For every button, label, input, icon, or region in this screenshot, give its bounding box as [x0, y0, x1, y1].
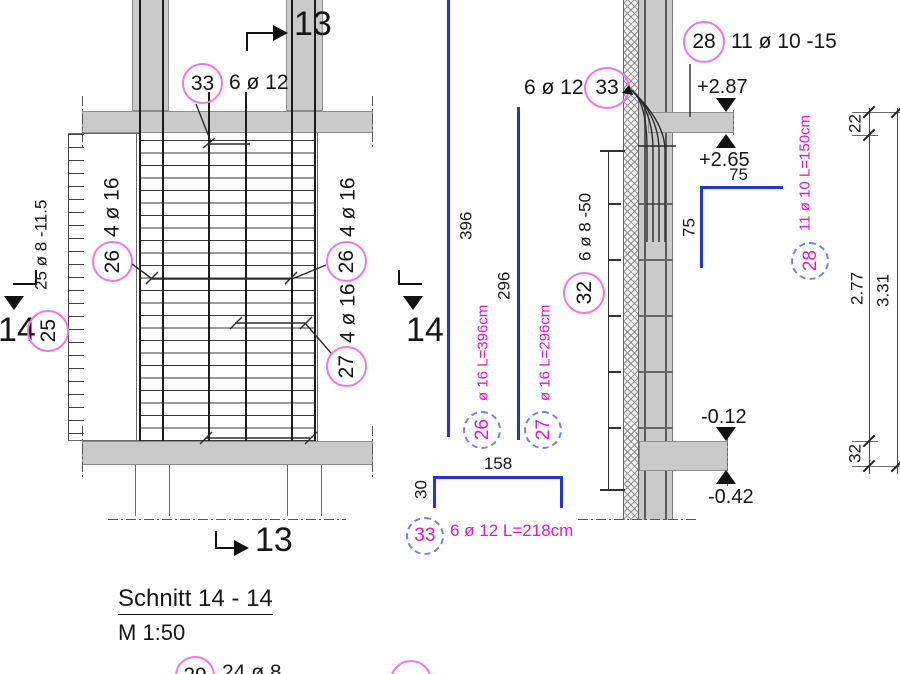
callout-number: 27: [534, 419, 553, 440]
level-012: -0.12: [701, 406, 747, 429]
bar-28-shape-leg: [700, 186, 703, 268]
bar-28-bubble: 28: [791, 242, 829, 280]
callout-number: 28: [801, 250, 820, 271]
wall-joint: [639, 315, 673, 317]
level-042: -0.42: [708, 486, 754, 509]
callout-number: 28: [692, 30, 715, 54]
bar-27-bubble: 27: [524, 411, 562, 449]
callout-32-label: 6 ø 8 -50: [575, 182, 595, 272]
drawing-scale: M 1:50: [118, 620, 185, 646]
level-arrow-down-icon: [716, 427, 736, 441]
callout-bubble-26-left: 26: [92, 241, 133, 282]
level-arrow-up-icon: [716, 134, 736, 148]
grid-border-right: [317, 133, 318, 441]
callout-bubble-partial-2: [390, 660, 432, 674]
callout-bubble-25: 25: [27, 310, 69, 352]
grid-border-left: [136, 133, 137, 441]
section-number: 13: [255, 521, 293, 560]
callout-number: 26: [336, 250, 357, 273]
grid-bar-vertical: [208, 92, 210, 441]
bar-26-length-label: ø 16 L=396cm: [473, 296, 493, 410]
callout-28-label: 11 ø 10 -15: [731, 30, 837, 54]
dim-277: 2.77: [847, 262, 867, 314]
staple-bubble: 33: [406, 517, 444, 555]
section-arrow-icon: [403, 296, 423, 310]
column-bar: [314, 0, 316, 441]
dim-32: 32: [845, 440, 865, 468]
grid-bar-vertical: [245, 92, 247, 441]
column-bar: [139, 0, 141, 441]
section-arrow-icon: [234, 540, 249, 556]
staple-bar-top: [433, 476, 563, 479]
wall-joint: [639, 203, 673, 205]
callout-bubble-26-right: 26: [326, 241, 367, 282]
bracket-32-tick: [608, 203, 621, 205]
upper-slab: [648, 112, 734, 133]
bracket-32-tick: [600, 489, 625, 491]
callout-27-label: 4 ø 16: [337, 280, 359, 346]
callout-bubble-27: 27: [326, 346, 367, 387]
bracket-32-line: [608, 150, 609, 490]
staple-length-label: 6 ø 12 L=218cm: [450, 521, 573, 541]
bracket-32-tick: [600, 150, 625, 152]
dim-line-inner: [869, 108, 870, 474]
callout-25-label: 25 ø 8 -11.5: [30, 178, 52, 312]
callout-bubble-33-section: 33: [584, 67, 630, 109]
bracket-32-tick: [608, 315, 621, 317]
wall-joint: [639, 371, 673, 373]
bar-28-dim-side: 75: [679, 212, 699, 244]
section-axis-line: [578, 519, 698, 520]
callout-26r-label: 4 ø 16: [337, 174, 359, 240]
staple-bar-leg-left: [433, 476, 436, 508]
callout-number: 29: [183, 664, 206, 674]
staple-dim-leg: 30: [412, 476, 430, 504]
callout-number: 32: [574, 281, 595, 304]
callout-number: 33: [414, 525, 435, 547]
wall-line: [287, 465, 288, 516]
column-bar: [291, 0, 293, 441]
dim-line-outer: [897, 108, 898, 474]
column-bar: [162, 0, 164, 441]
callout-number: 26: [102, 250, 123, 273]
dim-296: 296: [494, 260, 514, 312]
callout-bubble-29-partial: 29: [175, 656, 215, 674]
level-arrow-down-icon: [716, 98, 736, 112]
level-arrow-up-icon: [716, 470, 736, 484]
break-line: [372, 426, 373, 478]
bracket-32-tick: [608, 371, 621, 373]
callout-number: 26: [473, 419, 492, 440]
callout-number: 33: [595, 76, 618, 100]
bar-28-shape-top: [700, 186, 783, 189]
dim-331: 3.31: [873, 264, 893, 316]
center-axis-line: [108, 519, 346, 520]
bar-28-length-label: 11 ø 10 L=150cm: [795, 110, 815, 236]
wall-line: [169, 465, 170, 516]
structural-drawing: 13 13 14 14 33 6 ø 12 25 ø 8 -11.5 25 4 …: [0, 0, 900, 674]
wall-line: [321, 465, 322, 516]
wall-joint: [639, 427, 673, 429]
drawing-title: Schnitt 14 - 14: [118, 585, 273, 613]
bar-26-bubble: 26: [463, 411, 501, 449]
section-number: 13: [294, 5, 332, 44]
plan-beam-top: [82, 111, 373, 133]
callout-29-label-partial: 24 ø 8: [222, 661, 282, 674]
wall-joint: [639, 259, 673, 261]
callout-bubble-28: 28: [683, 21, 725, 63]
wall-line: [135, 465, 136, 516]
section-arrow-icon: [273, 25, 288, 41]
section-arrow-icon: [4, 296, 24, 310]
slab-edge-bottom: [68, 440, 140, 441]
dim-396: 396: [456, 200, 476, 252]
bar-shape-26: [447, 0, 450, 437]
callout-bubble-32: 32: [563, 272, 605, 314]
staple-dim-width: 158: [468, 454, 528, 474]
section-number: 14: [406, 311, 444, 350]
upper-slab-edge-dashed: [733, 110, 734, 135]
dim-22: 22: [845, 111, 865, 137]
callout-33-label: 6 ø 12: [229, 71, 289, 95]
staple-bar-leg-right: [560, 476, 563, 508]
callout-number: 25: [38, 319, 59, 342]
callout-number: 33: [191, 72, 214, 96]
edge-bar-ladder: [68, 134, 84, 440]
level-287: +2.87: [697, 76, 748, 99]
bracket-32-tick: [608, 259, 621, 261]
bar-27-length-label: ø 16 L=296cm: [535, 296, 555, 410]
callout-bubble-33: 33: [182, 63, 223, 104]
bar-shape-27: [517, 107, 520, 440]
grid-horizontal-bars: [141, 140, 316, 442]
section-33-label: 6 ø 12: [524, 76, 584, 100]
bracket-32-tick: [608, 427, 621, 429]
plan-beam-bottom: [82, 441, 373, 465]
bar-28-dim-top: 75: [729, 165, 748, 185]
title-text: Schnitt 14 - 14: [118, 585, 273, 615]
lower-slab: [639, 441, 728, 471]
callout-number: 27: [336, 355, 357, 378]
callout-26l-label: 4 ø 16: [101, 174, 123, 240]
break-line: [372, 96, 373, 148]
